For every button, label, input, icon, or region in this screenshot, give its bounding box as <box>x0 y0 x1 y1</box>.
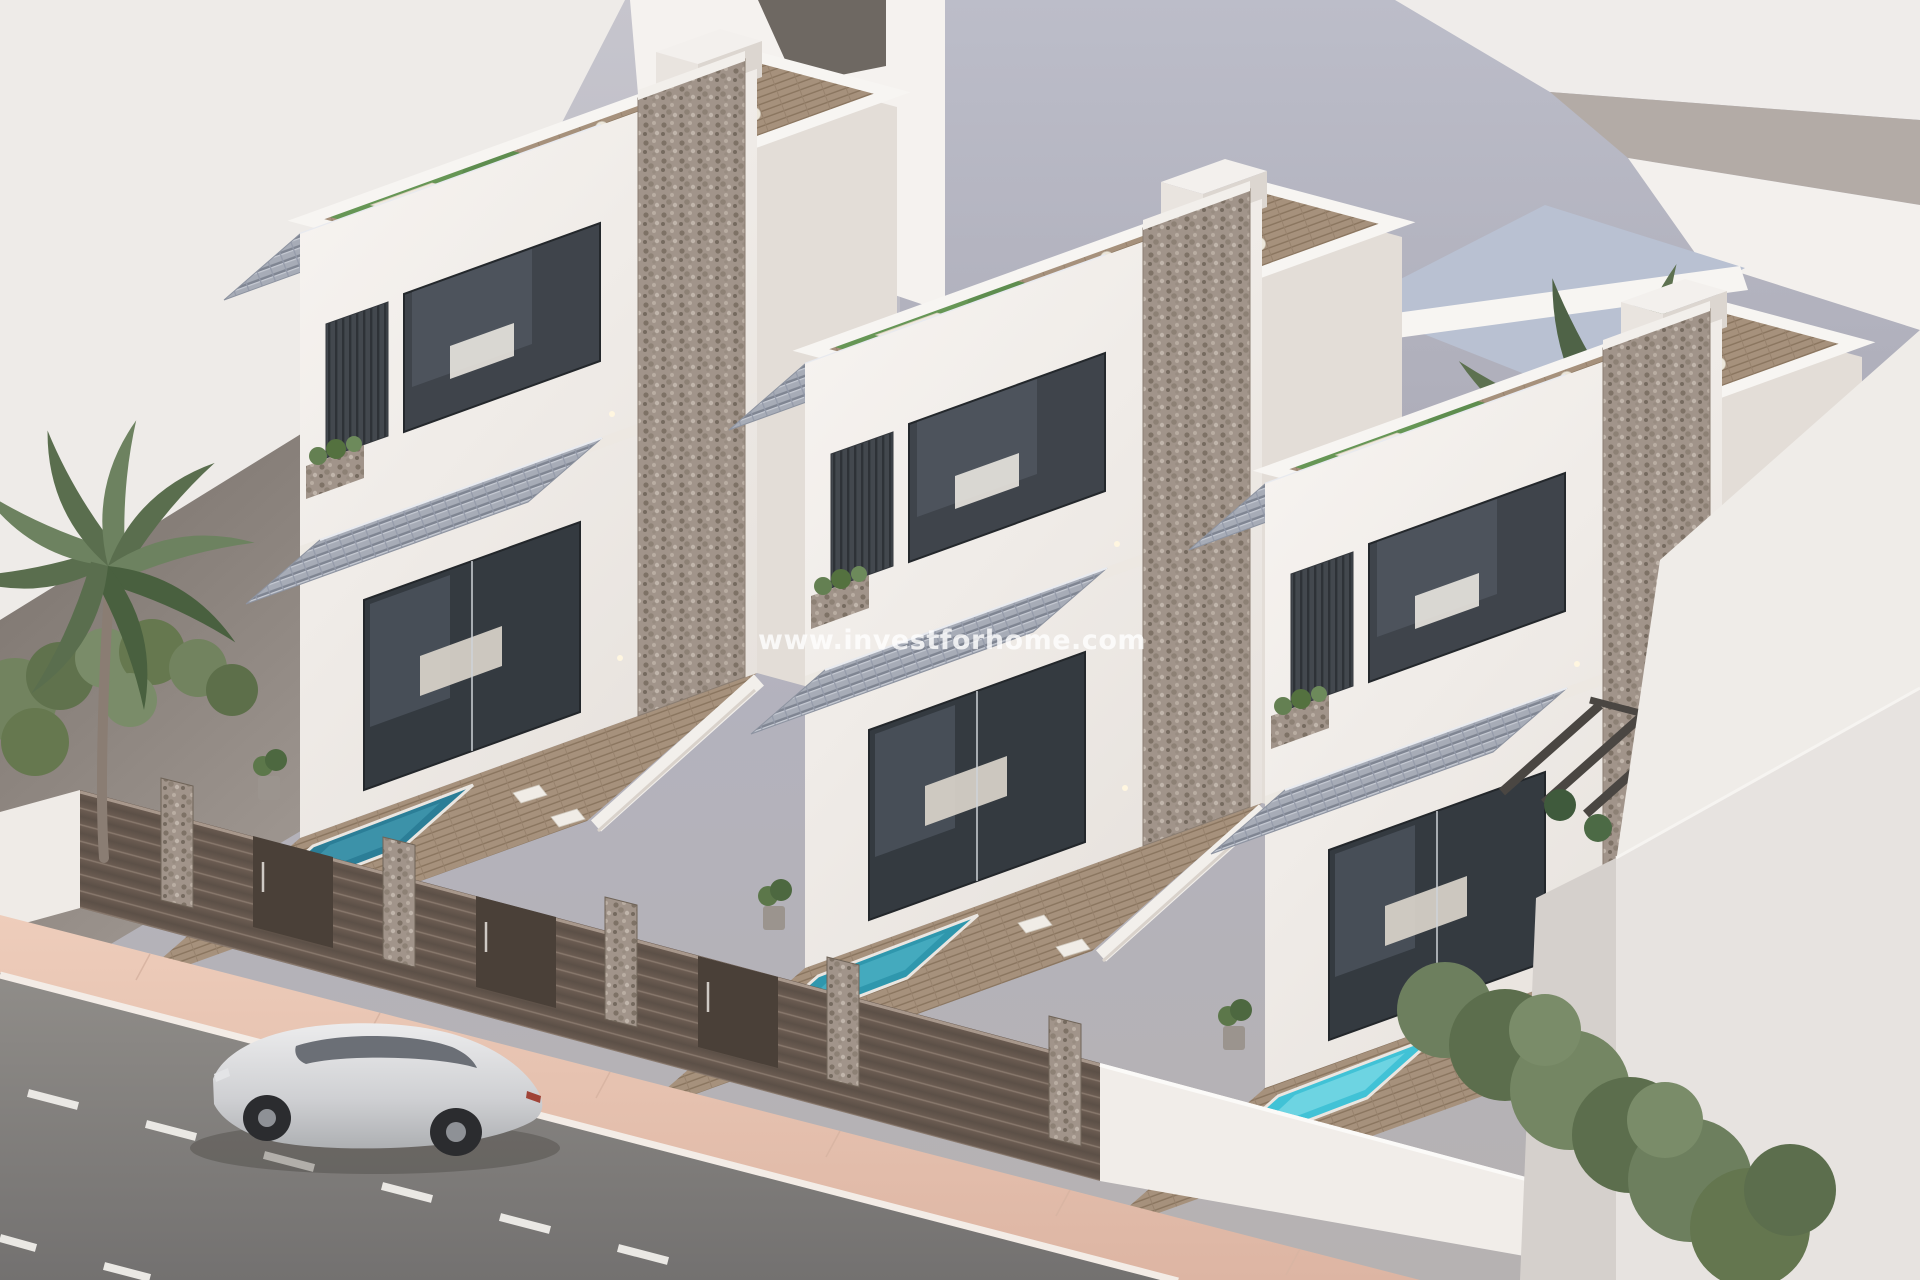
watermark-text: www.investforhome.com <box>758 625 1146 656</box>
left-end-wall <box>0 790 80 930</box>
render-canvas: www.investforhome.com <box>0 0 1920 1280</box>
villa-render: www.investforhome.com <box>0 0 1920 1280</box>
